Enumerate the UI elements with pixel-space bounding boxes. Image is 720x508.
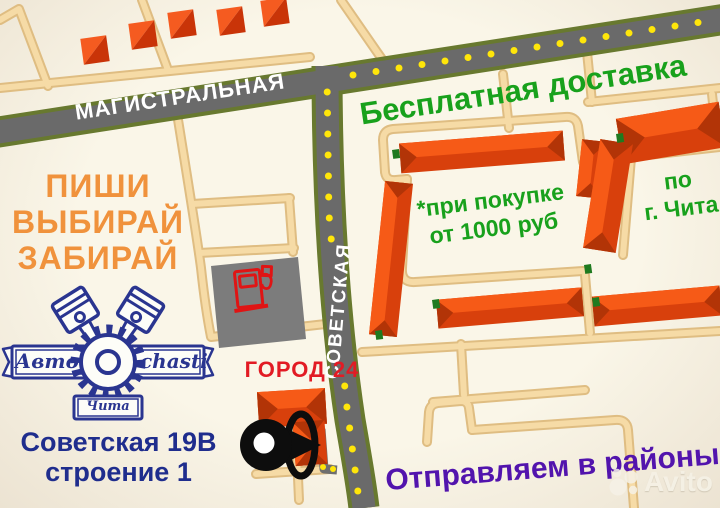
store-location-map: МАГИСТРАЛЬНАЯ СОВЕТСКАЯ Бесплатная доста… — [0, 0, 720, 508]
gas-station — [211, 257, 306, 348]
cta-line-3: ЗАБИРАЙ — [8, 240, 188, 276]
address-line-2: строение 1 — [6, 457, 231, 487]
cta-text: ПИШИ ВЫБИРАЙ ЗАБИРАЙ — [8, 168, 188, 276]
avito-watermark-text: Avito — [644, 466, 713, 498]
avito-watermark: Avito — [608, 466, 713, 498]
logo-word-right: chasti — [140, 349, 202, 373]
address-line-1: Советская 19В — [6, 427, 231, 457]
avito-logo-dots — [608, 467, 642, 497]
cta-line-1: ПИШИ — [8, 168, 188, 204]
landmark-label: ГОРОД 24 — [222, 357, 382, 383]
store-address: Советская 19В строение 1 — [6, 427, 231, 487]
logo-city-label: Чита — [76, 399, 140, 414]
gear-icon — [75, 329, 141, 395]
logo-word-left: Авто — [15, 349, 75, 373]
cta-line-2: ВЫБИРАЙ — [8, 204, 188, 240]
